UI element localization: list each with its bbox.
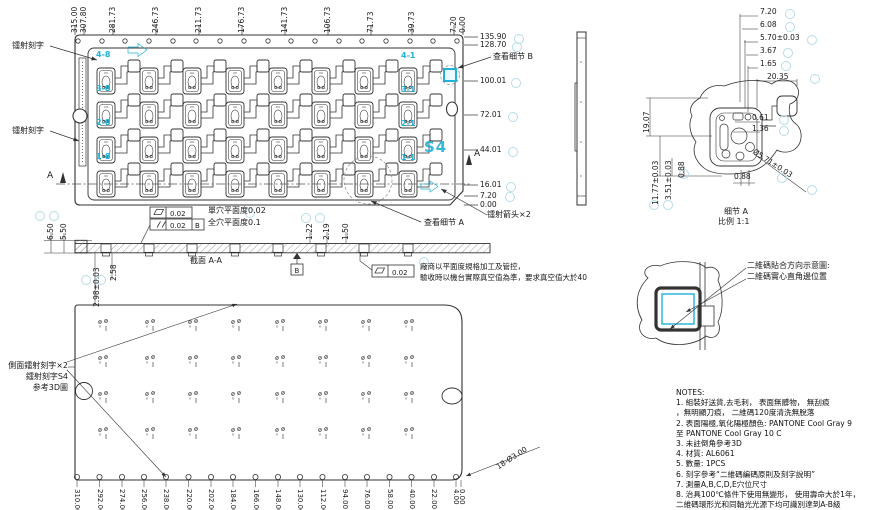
dim-label: 307.80 — [79, 7, 89, 33]
datum-b-label: B — [295, 266, 300, 276]
dim-label: 100.01 — [480, 76, 506, 86]
dim-label: 202.00 — [206, 489, 216, 510]
fcf-parallelism-value: 0.02 — [170, 221, 186, 231]
dim-label: 76.00 — [362, 489, 372, 509]
dim-label: 176.73 — [237, 7, 247, 33]
qr-detail-view — [637, 262, 746, 350]
dim-label: 5.70±0.03 — [760, 33, 800, 43]
dim-label: 166.00 — [251, 489, 261, 510]
note-line: 2. 表面陽極,氧化陽極顏色: PANTONE Cool Gray 9 — [676, 419, 876, 429]
dim-label: 184.00 — [228, 489, 238, 510]
dim-label: 16.01 — [480, 180, 501, 190]
qr-code-inner — [662, 294, 694, 324]
dim-label: 94.00 — [340, 489, 350, 509]
cavity-row-label: 1-8 — [96, 152, 110, 162]
engineering-drawing: 315.00 307.80 281.73 246.73 211.73 176.7… — [0, 0, 878, 510]
dim-label: 6.08 — [760, 20, 777, 30]
dim-label: 3.51±0.03 — [664, 160, 674, 200]
dim-label: 2.58 — [109, 264, 119, 281]
laser-arrow-icon — [421, 181, 438, 192]
section-letter: A — [47, 171, 53, 181]
dim-label: 256.00 — [139, 489, 149, 510]
note-line: 3. 未註倒角參考3D — [676, 439, 876, 449]
dim-label: 1.36 — [752, 124, 769, 134]
cavity-row-label: 1-1 — [401, 153, 415, 163]
side-laser-note: 側面鐳射刻字×2 鐳射刻字S4 参考3D圖 — [0, 360, 68, 393]
dim-label: 1.50 — [341, 223, 351, 240]
dim-label: 130.00 — [295, 489, 305, 510]
note-line: 至 PANTONE Cool Gray 10 C — [676, 429, 876, 439]
dim-label: 148.00 — [273, 489, 283, 510]
note-line: 4. 材質: AL6061 — [676, 449, 876, 459]
s4-marker: S4 — [424, 142, 447, 152]
dim-label: 112.00 — [318, 489, 328, 510]
dim-label: 39.73 — [407, 12, 417, 33]
dim-label: 292.00 — [95, 489, 105, 510]
dim-label: 0.00 — [480, 200, 497, 210]
dim-label: 7.20 — [760, 7, 777, 17]
dim-label: 246.73 — [151, 7, 161, 33]
dim-label: 141.73 — [280, 7, 290, 33]
dim-label: 274.00 — [117, 489, 127, 510]
detail-a-scale: 比例 1:1 — [718, 217, 749, 227]
dim-label: 71.73 — [366, 12, 376, 33]
section-title: 截面 A-A — [190, 256, 222, 266]
note-line: 8. 治具100℃條件下使用無變形， 使用壽命大於1年， — [676, 490, 876, 500]
cavity-row-label: 3-1 — [401, 85, 415, 95]
flatness-note: 單穴平面度0.02 — [208, 206, 266, 216]
side-view — [575, 32, 586, 205]
bottom-hole-row — [74, 474, 458, 479]
dim-label: 40.00 — [407, 489, 417, 509]
view-detail-b-note: 查看细节 B — [493, 52, 533, 62]
cavity-row-label: 4-1 — [401, 51, 415, 61]
view-detail-a-note: 查看细节 A — [424, 218, 464, 228]
dim-label: 281.73 — [108, 7, 118, 33]
dim-label: 128.70 — [480, 40, 506, 50]
top-view-annotations — [50, 25, 491, 222]
dim-label: 211.73 — [194, 7, 204, 33]
dim-label: 19.07 — [642, 112, 652, 133]
dim-label: 5.50 — [59, 223, 69, 240]
dim-label: 1.22 — [305, 223, 315, 240]
dim-label: 1.65 — [760, 59, 777, 69]
fcf-flatness-value: 0.02 — [392, 268, 408, 278]
dim-label: 58.00 — [385, 489, 395, 509]
note-line: 5. 數量: 1PCS — [676, 459, 876, 469]
laser-engrave-label: 镭射刻字 — [12, 41, 44, 51]
detail-a-caption: 细节 A — [724, 207, 748, 217]
dim-label: 0.88 — [734, 172, 751, 182]
section-letter: A — [474, 149, 480, 159]
qr-note: 二維碼實心直角邊位置 — [747, 272, 827, 282]
dim-label: 0.88 — [677, 161, 687, 178]
dim-label: 44.01 — [480, 145, 501, 155]
bottom-cavity-marks — [98, 319, 413, 439]
notes-block: NOTES: 1. 組裝好送貨,去毛刺， 表面無髒物， 無刮痕 ，無明顯刀痕， … — [676, 388, 876, 510]
cavity-row-label: 2-1 — [401, 119, 415, 129]
dim-label: 20.35 — [767, 72, 788, 82]
dim-label: 6.50 — [46, 223, 56, 240]
note-line: 6. 刻字參考“二維碼編碼原則及刻字說明” — [676, 470, 876, 480]
dim-label: 0.00 — [457, 489, 467, 505]
laser-arrow-note: 镭射箭头×2 — [487, 210, 531, 220]
dim-label: 220.00 — [184, 489, 194, 510]
fcf-datum-ref: B — [195, 221, 200, 231]
flatness-note: 全穴平面度0.1 — [208, 218, 261, 228]
vendor-note: 廠商以平面度規格加工及管控， — [420, 262, 525, 272]
dim-label: 2.19 — [322, 223, 332, 240]
cavity-row-label: 4-8 — [96, 50, 110, 60]
dim-label: 238.00 — [161, 489, 171, 510]
laser-arrow-icon — [128, 44, 147, 57]
dim-label: 72.01 — [480, 110, 501, 120]
note-line: ，無明顯刀痕， 二維碼120度清洗無脫落 — [676, 408, 876, 418]
qr-note: 二維碼貼合方向示意圖: — [747, 261, 830, 271]
dim-label: 3.67 — [760, 46, 777, 56]
dim-label: 2.98±0.03 — [92, 267, 102, 307]
bottom-view-plate — [67, 304, 540, 487]
laser-engrave-label: 镭射刻字 — [12, 126, 44, 136]
qr-code-mark — [444, 69, 456, 81]
dim-label: 22.00 — [429, 489, 439, 509]
note-line: 1. 組裝好送貨,去毛刺， 表面無髒物， 無刮痕 — [676, 398, 876, 408]
cavity-row-label: 3-8 — [96, 84, 110, 94]
notes-title: NOTES: — [676, 388, 876, 398]
dim-label: 11.77±0.03 — [651, 161, 661, 205]
dim-label: 0.61 — [752, 113, 769, 123]
cavity-row-label: 2-8 — [96, 118, 110, 128]
vendor-note: 驗收時以機台實際真空值為準，要求真空值大於40 — [420, 273, 587, 283]
note-line: 二維碼環形光和同軸光光源下均可識別達到A-B級 — [676, 500, 876, 510]
dim-label: 106.73 — [323, 7, 333, 33]
fcf-flatness-value: 0.02 — [170, 209, 186, 219]
cavity-grid — [97, 60, 442, 197]
dim-label: 0.00 — [458, 16, 468, 33]
dim-label: 310.00 — [72, 489, 82, 510]
note-line: 7. 測量A,B,C,D,E穴位尺寸 — [676, 480, 876, 490]
